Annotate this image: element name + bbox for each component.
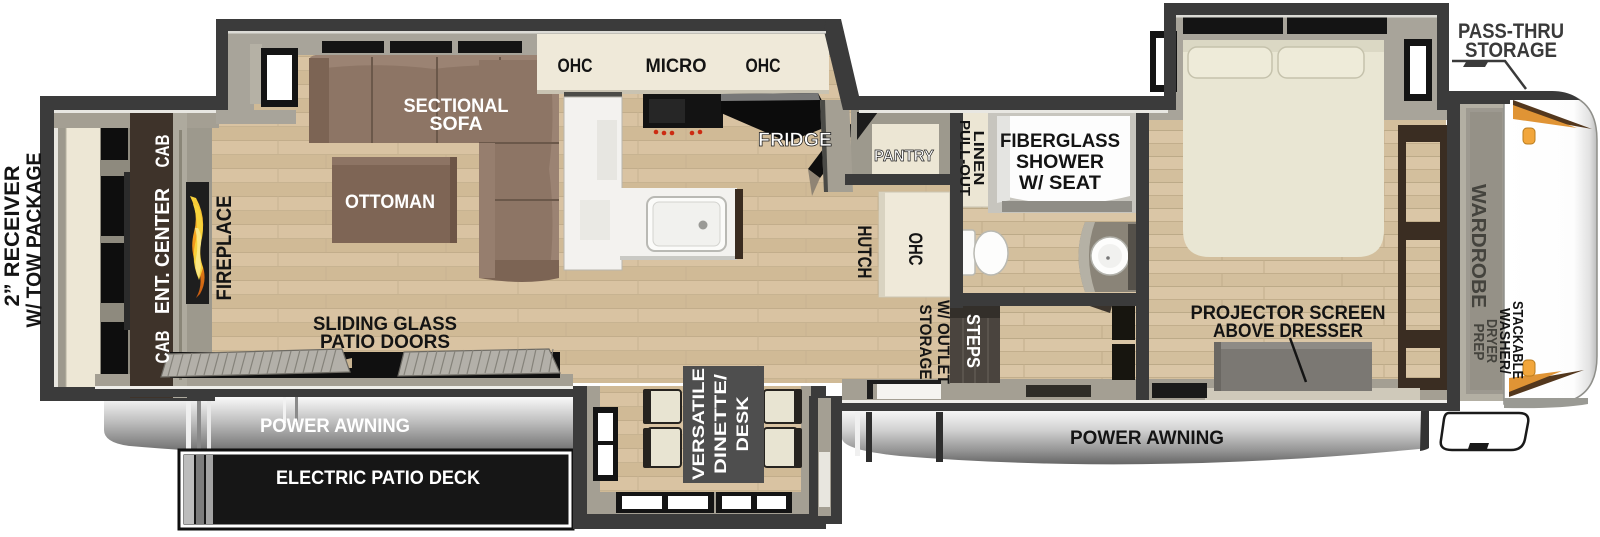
svg-text:W/ TOW PACKAGE: W/ TOW PACKAGE [23,153,46,328]
svg-text:MICRO: MICRO [646,56,707,77]
svg-text:ELECTRIC PATIO DECK: ELECTRIC PATIO DECK [276,468,480,489]
svg-text:PATIO DOORS: PATIO DOORS [320,332,450,353]
svg-text:STORAGE: STORAGE [1465,39,1557,62]
svg-text:OTTOMAN: OTTOMAN [345,192,435,213]
svg-text:POWER AWNING: POWER AWNING [260,416,410,437]
svg-text:OHC: OHC [558,56,593,77]
svg-text:HUTCH: HUTCH [853,226,874,279]
svg-text:LINEN: LINEN [970,131,987,186]
svg-text:ENT. CENTER: ENT. CENTER [152,187,174,314]
svg-text:PREP: PREP [1470,324,1487,361]
svg-text:CAB: CAB [153,135,174,168]
svg-text:CAB: CAB [153,331,174,364]
svg-text:OHC: OHC [904,233,925,266]
svg-text:ABOVE DRESSER: ABOVE DRESSER [1213,321,1363,342]
svg-text:SOFA: SOFA [430,114,483,135]
svg-text:FIBERGLASS: FIBERGLASS [1000,131,1120,152]
svg-text:STORAGE: STORAGE [916,305,935,380]
svg-text:STEPS: STEPS [963,314,983,368]
svg-text:W/ SEAT: W/ SEAT [1019,173,1101,194]
svg-text:DINETTE/: DINETTE/ [711,374,730,474]
svg-text:W/ OUTLET: W/ OUTLET [934,300,953,385]
svg-text:DESK: DESK [733,396,752,452]
svg-text:FRIDGE: FRIDGE [758,130,832,151]
svg-text:OHC: OHC [746,56,781,77]
svg-text:VERSATILE: VERSATILE [689,368,708,480]
svg-text:FIREPLACE: FIREPLACE [213,196,236,301]
svg-text:POWER AWNING: POWER AWNING [1070,428,1224,449]
svg-text:2” RECEIVER: 2” RECEIVER [1,166,24,307]
svg-text:WARDROBE: WARDROBE [1467,184,1489,308]
svg-text:PANTRY: PANTRY [874,148,934,165]
svg-text:SHOWER: SHOWER [1016,152,1104,173]
